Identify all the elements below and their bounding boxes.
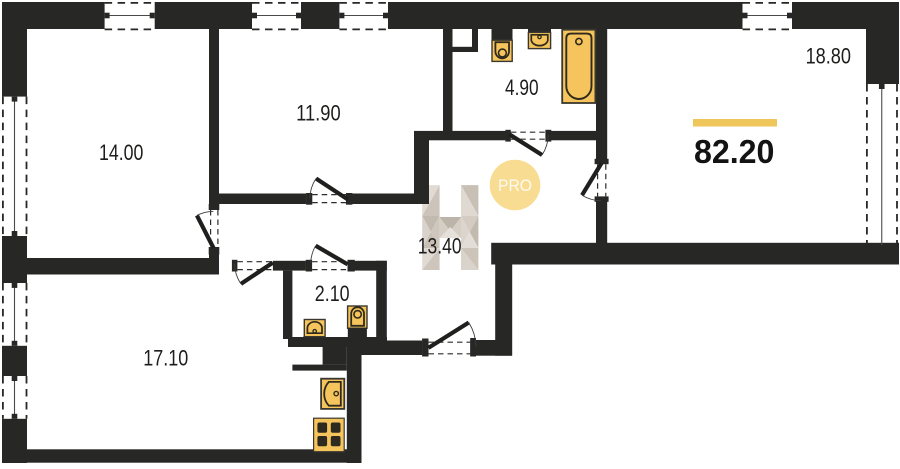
svg-text:14.00: 14.00 — [99, 140, 143, 165]
svg-text:2.10: 2.10 — [315, 281, 350, 306]
svg-text:18.80: 18.80 — [806, 44, 851, 69]
svg-text:11.90: 11.90 — [296, 101, 341, 126]
svg-text:PRO: PRO — [498, 177, 532, 195]
svg-text:82.20: 82.20 — [694, 134, 775, 171]
svg-text:17.10: 17.10 — [143, 346, 188, 371]
svg-text:13.40: 13.40 — [418, 234, 462, 259]
svg-text:4.90: 4.90 — [505, 75, 539, 100]
